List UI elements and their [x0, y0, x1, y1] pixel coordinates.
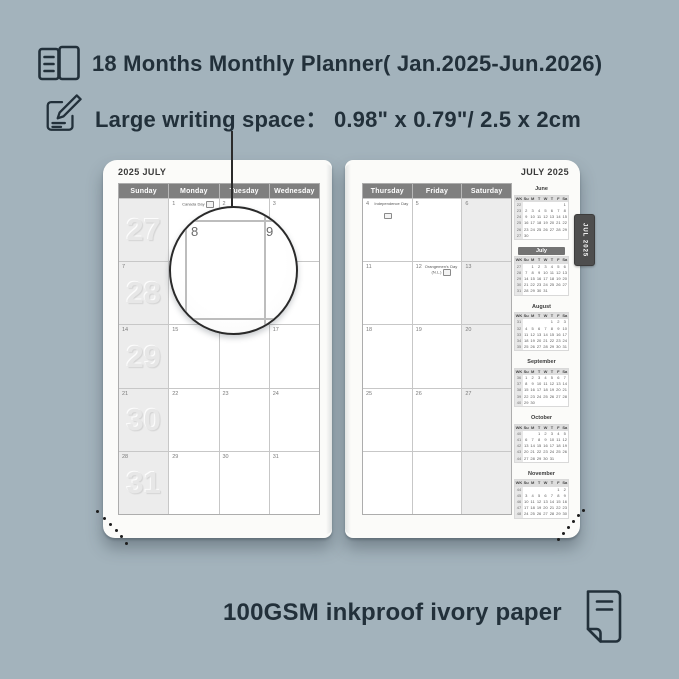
mini-month-label: September — [518, 358, 565, 366]
mini-date: 31 — [562, 344, 568, 350]
magnified-grid-line — [171, 318, 296, 320]
day-cell: 18 — [363, 325, 412, 387]
corner-stitch-dot — [109, 523, 112, 526]
day-cell: 3021 — [119, 389, 168, 451]
holiday-label: Independence Day — [374, 201, 409, 206]
weekday-header: Wednesday — [269, 184, 319, 198]
date-number: 13 — [465, 264, 471, 270]
mini-month-grid: WKSuMTWTFSa22123234567824910111213141525… — [514, 195, 569, 240]
corner-stitch-dot — [557, 538, 560, 541]
weekday-header: Monday — [168, 184, 218, 198]
feature-headline-paper: 100GSM inkproof ivory paper — [223, 599, 562, 627]
date-number: 14 — [122, 327, 128, 333]
date-number: 12 — [416, 264, 422, 270]
day-cell: 26 — [412, 389, 462, 451]
holiday-label: Orangemen's Day (N.L.) — [424, 264, 459, 276]
corner-stitch-dot — [567, 526, 570, 529]
holiday-text: Orangemen's Day (N.L.) — [425, 264, 457, 274]
day-cell — [363, 452, 412, 514]
day-cell: 29 — [168, 452, 218, 514]
writing-space-value: 0.98" x 0.79"/ 2.5 x 2cm — [334, 107, 581, 132]
month-index-tab: JUL 2025 — [574, 214, 595, 266]
day-cell: 11 — [363, 262, 412, 324]
mini-month-grid: WKSuMTWTFSa44124534567894610111213141516… — [514, 479, 569, 518]
date-number: 23 — [223, 391, 229, 397]
holiday-text: Independence Day — [374, 201, 408, 206]
weekday-header: Friday — [412, 184, 462, 198]
day-cell: 27 — [461, 389, 511, 451]
mini-month-grid: WKSuMTWTFSa31123324567891033111213141516… — [514, 312, 569, 351]
magnified-date: 9 — [266, 224, 273, 239]
mini-month-label: November — [518, 470, 565, 478]
weekday-header: Sunday — [119, 184, 168, 198]
day-cell: 4Independence Day — [363, 199, 412, 261]
mini-week-number: 40 — [515, 400, 523, 406]
week-number: 29 — [119, 325, 168, 387]
calendar-week-row: 252627 — [363, 388, 511, 451]
date-number: 18 — [366, 327, 372, 333]
day-cell: 287 — [119, 262, 168, 324]
date-number: 31 — [273, 454, 279, 460]
day-cell: 5 — [412, 199, 462, 261]
holiday-flag-icon — [443, 269, 451, 276]
planner-right-page: JULY 2025 ThursdayFridaySaturday4Indepen… — [345, 160, 580, 538]
date-number: 21 — [122, 391, 128, 397]
weekday-header-row: SundayMondayTuesdayWednesday — [119, 184, 319, 198]
holiday-flag-icon — [206, 201, 214, 208]
day-cell: 17 — [269, 325, 319, 387]
day-cell: 16 — [219, 325, 269, 387]
mini-week-number: 27 — [515, 233, 523, 239]
weekday-header: Saturday — [461, 184, 511, 198]
day-cell: 22 — [168, 389, 218, 451]
date-number: 4 — [366, 201, 369, 207]
week-number: 30 — [119, 389, 168, 451]
mini-month-label: October — [518, 414, 565, 422]
mini-month-label: August — [518, 303, 565, 311]
week-number: 31 — [119, 452, 168, 514]
mini-date — [562, 400, 568, 406]
date-number: 26 — [416, 391, 422, 397]
calendar-week-row: 3128293031 — [119, 451, 319, 514]
date-number: 22 — [172, 391, 178, 397]
date-number: 7 — [122, 264, 125, 270]
day-cell: 6 — [461, 199, 511, 261]
mini-month-october: OctoberWKSuMTWTFSa4012345416789101112421… — [514, 414, 569, 463]
mini-month-grid: WKSuMTWTFSa36123456737891011121314381516… — [514, 368, 569, 407]
date-number: 6 — [465, 201, 468, 207]
day-cell: 19 — [412, 325, 462, 387]
mini-month-grid: WKSuMTWTFSa27123456287891011121329141516… — [514, 256, 569, 295]
mini-month-grid: WKSuMTWTFSa40123454167891011124213141516… — [514, 424, 569, 463]
mini-month-label: June — [518, 185, 565, 193]
day-cell: 25 — [363, 389, 412, 451]
mini-month-september: SeptemberWKSuMTWTFSa36123456737891011121… — [514, 358, 569, 407]
month-title-right: JULY 2025 — [521, 167, 569, 177]
mini-calendar-sidebar: JuneWKSuMTWTFSa2212323456782491011121314… — [514, 185, 569, 526]
mini-month-november: NovemberWKSuMTWTFSa441245345678946101112… — [514, 470, 569, 519]
open-book-icon — [36, 44, 82, 84]
magnified-grid-line — [185, 208, 187, 333]
mini-date — [562, 288, 568, 294]
mini-month-june: JuneWKSuMTWTFSa2212323456782491011121314… — [514, 185, 569, 240]
date-number: 27 — [465, 391, 471, 397]
callout-line — [231, 131, 233, 207]
day-cell: 3128 — [119, 452, 168, 514]
mini-week-number: 48 — [515, 511, 523, 517]
date-number: 15 — [172, 327, 178, 333]
day-cell: 30 — [219, 452, 269, 514]
calendar-week-row: 4Independence Day56 — [363, 198, 511, 261]
date-number: 20 — [465, 327, 471, 333]
date-number: 3 — [273, 201, 276, 207]
weekday-header-row: ThursdayFridaySaturday — [363, 184, 511, 198]
mini-month-july: JulyWKSuMTWTFSa2712345628789101112132914… — [514, 247, 569, 296]
date-number: 24 — [273, 391, 279, 397]
date-number: 19 — [416, 327, 422, 333]
date-number: 5 — [416, 201, 419, 207]
date-number: 30 — [223, 454, 229, 460]
corner-stitch-dot — [562, 532, 565, 535]
calendar-week-row: 1112Orangemen's Day (N.L.)13 — [363, 261, 511, 324]
writing-space-label: Large writing space： — [95, 107, 328, 132]
weekday-header: Tuesday — [219, 184, 269, 198]
mini-date — [562, 233, 568, 239]
corner-stitch-dot — [115, 529, 118, 532]
date-number: 29 — [172, 454, 178, 460]
date-number: 1 — [172, 201, 175, 207]
day-cell: 15 — [168, 325, 218, 387]
corner-stitch-dot — [125, 542, 128, 545]
weekday-header: Thursday — [363, 184, 412, 198]
mini-date: 30 — [562, 511, 568, 517]
corner-stitch-dot — [577, 514, 580, 517]
day-cell: 13 — [461, 262, 511, 324]
holiday-label: Canada Day — [180, 201, 215, 208]
mini-week-number: 44 — [515, 456, 523, 462]
corner-stitch-dot — [103, 517, 106, 520]
day-cell: 24 — [269, 389, 319, 451]
date-number: 11 — [366, 264, 372, 270]
corner-stitch-dot — [120, 535, 123, 538]
corner-stitch-dot — [572, 520, 575, 523]
day-cell: 27 — [119, 199, 168, 261]
day-cell: 2914 — [119, 325, 168, 387]
date-number: 25 — [366, 391, 372, 397]
paper-sheet-icon — [578, 588, 626, 646]
mini-date — [562, 456, 568, 462]
calendar-week-row: 3021222324 — [119, 388, 319, 451]
day-cell: 23 — [219, 389, 269, 451]
day-cell: 12Orangemen's Day (N.L.) — [412, 262, 462, 324]
mini-week-number: 35 — [515, 344, 523, 350]
day-cell: 20 — [461, 325, 511, 387]
mini-week-number: 31 — [515, 288, 523, 294]
writing-pencil-icon — [42, 92, 82, 136]
week-number: 27 — [119, 199, 168, 261]
week-number: 28 — [119, 262, 168, 324]
mini-month-august: AugustWKSuMTWTFSa31123324567891033111213… — [514, 303, 569, 352]
calendar-week-row: 2914151617 — [119, 324, 319, 387]
magnifier-circle: 8 9 — [169, 206, 298, 335]
calendar-week-row — [363, 451, 511, 514]
date-number: 17 — [273, 327, 279, 333]
month-grid-right: ThursdayFridaySaturday4Independence Day5… — [362, 183, 512, 515]
day-cell — [412, 452, 462, 514]
holiday-flag-row — [363, 207, 412, 225]
planner-product-image: 18 Months Monthly Planner( Jan.2025-Jun.… — [0, 0, 679, 679]
mini-month-label: July — [518, 247, 565, 255]
magnified-grid-line — [171, 220, 296, 222]
holiday-text: Canada Day — [182, 201, 205, 206]
holiday-flag-icon — [384, 213, 392, 220]
month-title-left: 2025 JULY — [118, 167, 166, 177]
feature-headline-months: 18 Months Monthly Planner( Jan.2025-Jun.… — [92, 51, 602, 77]
calendar-week-row: 181920 — [363, 324, 511, 387]
feature-headline-writing-space: Large writing space： 0.98" x 0.79"/ 2.5 … — [95, 102, 581, 134]
magnified-date: 8 — [191, 224, 198, 239]
day-cell — [461, 452, 511, 514]
date-number: 28 — [122, 454, 128, 460]
corner-stitch-dot — [582, 509, 585, 512]
corner-stitch-dot — [96, 510, 99, 513]
day-cell: 31 — [269, 452, 319, 514]
